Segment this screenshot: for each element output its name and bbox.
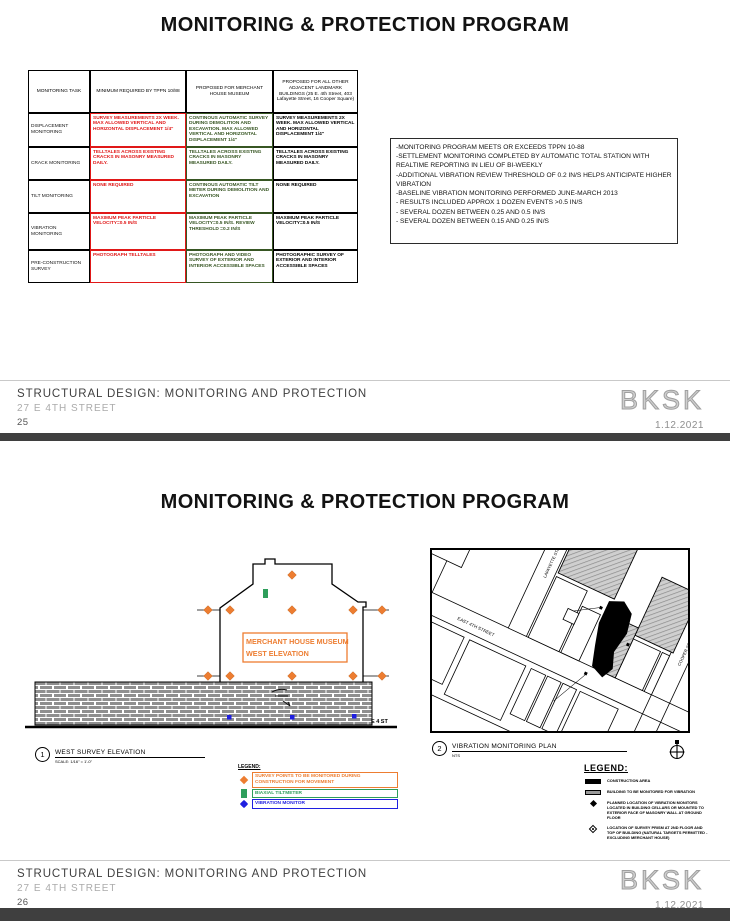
drawing-number-circle: 1 (35, 747, 50, 762)
masonry-wall (35, 682, 372, 725)
svg-text:MERCHANT HOUSE MUSEUM: MERCHANT HOUSE MUSEUM (246, 637, 349, 646)
north-arrow-icon (666, 738, 688, 762)
note-line: -ADDITIONAL VIBRATION REVIEW THRESHOLD O… (396, 171, 672, 189)
site-plan-drawing: LAFAYETTE STREET EAST 4TH STREET COOPER … (430, 548, 690, 733)
vibration-monitor-icon (239, 800, 247, 808)
table-cell: SURVEY MEASUREMENTS 2X WEEK. MAX ALLOWED… (90, 113, 186, 147)
table-cell: TELLTALES ACROSS EXISTING CRACKS IN MASO… (273, 147, 358, 180)
legend-item: BUILDING TO BE MONITORED FOR VIBRATION (584, 789, 709, 795)
bksk-logo: BKSK (620, 385, 704, 416)
presentation-page: MONITORING & PROTECTION PROGRAM MONITORI… (0, 0, 730, 921)
street-label-e4st: E 4 ST (371, 719, 388, 725)
table-cell: NONE REQUIRED (273, 180, 358, 213)
slide-25: MONITORING & PROTECTION PROGRAM MONITORI… (0, 0, 730, 441)
table-cell: DISPLACEMENT MONITORING (28, 113, 90, 147)
survey-prism-icon (589, 825, 597, 833)
table-cell: PRE-CONSTRUCTION SURVEY (28, 250, 90, 283)
bottom-bar (0, 908, 730, 921)
legend-item: SURVEY POINTS TO BE MONITORED DURING CON… (238, 772, 398, 788)
drawing-title: WEST SURVEY ELEVATION (55, 749, 205, 758)
legend-item-label: VIBRATION MONITOR (252, 799, 398, 809)
legend-item: VIBRATION MONITOR (238, 799, 398, 809)
legend-item-label: BUILDING TO BE MONITORED FOR VIBRATION (607, 789, 695, 794)
svg-text:WEST ELEVATION: WEST ELEVATION (246, 649, 309, 658)
table-header-museum: PROPOSED FOR MERCHANT HOUSE MUSEUM (186, 70, 273, 113)
table-cell: TELLTALES ACROSS EXISTING CRACKS IN MASO… (186, 147, 273, 180)
monitored-building-icon (585, 790, 601, 795)
drawing-scale: NTS (452, 753, 627, 758)
legend-item-label: BIAXIAL TILTMETER (252, 789, 398, 799)
table-header-minimum: MINIMUM REQUIRED BY TPPN 10/88 (90, 70, 186, 113)
legend-item-label: SURVEY POINTS TO BE MONITORED DURING CON… (252, 772, 398, 788)
plan-legend: LEGEND: CONSTRUCTION AREA BUILDING TO BE… (584, 763, 709, 846)
legend-title: LEGEND: (584, 763, 709, 773)
slide-footer: STRUCTURAL DESIGN: MONITORING AND PROTEC… (0, 380, 730, 436)
tiltmeter-marker (263, 589, 268, 598)
page-number: 26 (17, 897, 730, 908)
slide-26: MONITORING & PROTECTION PROGRAM (0, 441, 730, 921)
legend-item: CONSTRUCTION AREA (584, 778, 709, 784)
footer-date: 1.12.2021 (655, 420, 704, 431)
table-cell: CONTINOUS AUTOMATIC SURVEY DURING DEMOLI… (186, 113, 273, 147)
table-cell: MAXIMUM PEAK PARTICLE VELOCITY=0.5 IN/S (90, 213, 186, 250)
table-cell: CONTINOUS AUTOMATIC TILT METER DURING DE… (186, 180, 273, 213)
table-cell: TILT MONITORING (28, 180, 90, 213)
slide-title: MONITORING & PROTECTION PROGRAM (0, 14, 730, 37)
table-header-other: PROPOSED FOR ALL OTHER ADJACENT LANDMARK… (273, 70, 358, 113)
note-line: -SETTLEMENT MONITORING COMPLETED BY AUTO… (396, 152, 672, 170)
note-line: - SEVERAL DOZEN BETWEEN 0.15 AND 0.25 IN… (396, 217, 672, 226)
west-elevation-drawing: MERCHANT HOUSE MUSEUM WEST ELEVATION E 4… (25, 545, 425, 750)
legend-item: LOCATION OF SURVEY PRISM AT 2ND FLOOR AN… (584, 825, 709, 840)
table-cell: MAXIMUM PEAK PARTICLE VELOCITY=0.5 IN/S.… (186, 213, 273, 250)
legend-item-label: CONSTRUCTION AREA (607, 778, 650, 783)
legend-title: LEGEND: (238, 764, 398, 770)
note-line: -BASELINE VIBRATION MONITORING PERFORMED… (396, 189, 672, 198)
table-cell: SURVEY MEASUREMENTS 2X WEEK. MAX ALLOWED… (273, 113, 358, 147)
tiltmeter-icon (241, 789, 247, 798)
note-line: - RESULTS INCLUDED APPROX 1 DOZEN EVENTS… (396, 198, 672, 207)
bksk-logo: BKSK (620, 865, 704, 896)
survey-point-icon (239, 776, 247, 784)
table-cell: TELLTALES ACROSS EXISTING CRACKS IN MASO… (90, 147, 186, 180)
table-cell: PHOTOGRAPHIC SURVEY OF EXTERIOR AND INTE… (273, 250, 358, 283)
legend-item-label: PLANNED LOCATION OF VIBRATION MONITORS L… (607, 800, 709, 820)
drawing-scale: SCALE: 1/16" = 1'-0" (55, 759, 205, 764)
table-cell: CRACK MONITORING (28, 147, 90, 180)
callout-1: 1 WEST SURVEY ELEVATION SCALE: 1/16" = 1… (35, 747, 205, 764)
legend-item: BIAXIAL TILTMETER (238, 789, 398, 799)
table-cell: PHOTOGRAPH TELLTALES (90, 250, 186, 283)
table-cell: VIBRATION MONITORING (28, 213, 90, 250)
legend-item-label: LOCATION OF SURVEY PRISM AT 2ND FLOOR AN… (607, 825, 709, 840)
elevation-label-box: MERCHANT HOUSE MUSEUM WEST ELEVATION (243, 633, 349, 662)
slide-divider-bar (0, 433, 730, 441)
drawing-number-circle: 2 (432, 741, 447, 756)
callout-2: 2 VIBRATION MONITORING PLAN NTS (432, 741, 627, 758)
monitoring-table: MONITORING TASK MINIMUM REQUIRED BY TPPN… (28, 70, 358, 283)
vibration-location-icon (589, 800, 596, 807)
note-line: -MONITORING PROGRAM MEETS OR EXCEEDS TPP… (396, 143, 672, 152)
elevation-legend: LEGEND: SURVEY POINTS TO BE MONITORED DU… (238, 764, 398, 810)
table-header-task: MONITORING TASK (28, 70, 90, 113)
table-cell: NONE REQUIRED (90, 180, 186, 213)
legend-item: PLANNED LOCATION OF VIBRATION MONITORS L… (584, 800, 709, 820)
notes-box: -MONITORING PROGRAM MEETS OR EXCEEDS TPP… (390, 138, 678, 244)
construction-area-icon (585, 779, 601, 784)
drawing-title: VIBRATION MONITORING PLAN (452, 743, 627, 752)
table-cell: PHOTOGRAPH AND VIDEO SURVEY OF EXTERIOR … (186, 250, 273, 283)
note-line: - SEVERAL DOZEN BETWEEN 0.25 AND 0.5 IN/… (396, 208, 672, 217)
slide-title: MONITORING & PROTECTION PROGRAM (0, 491, 730, 514)
page-number: 25 (17, 417, 730, 428)
footer-rule (0, 380, 730, 381)
table-cell: MAXIMUM PEAK PARTICLE VELOCITY=0.5 IN/S (273, 213, 358, 250)
footer-rule (0, 860, 730, 861)
